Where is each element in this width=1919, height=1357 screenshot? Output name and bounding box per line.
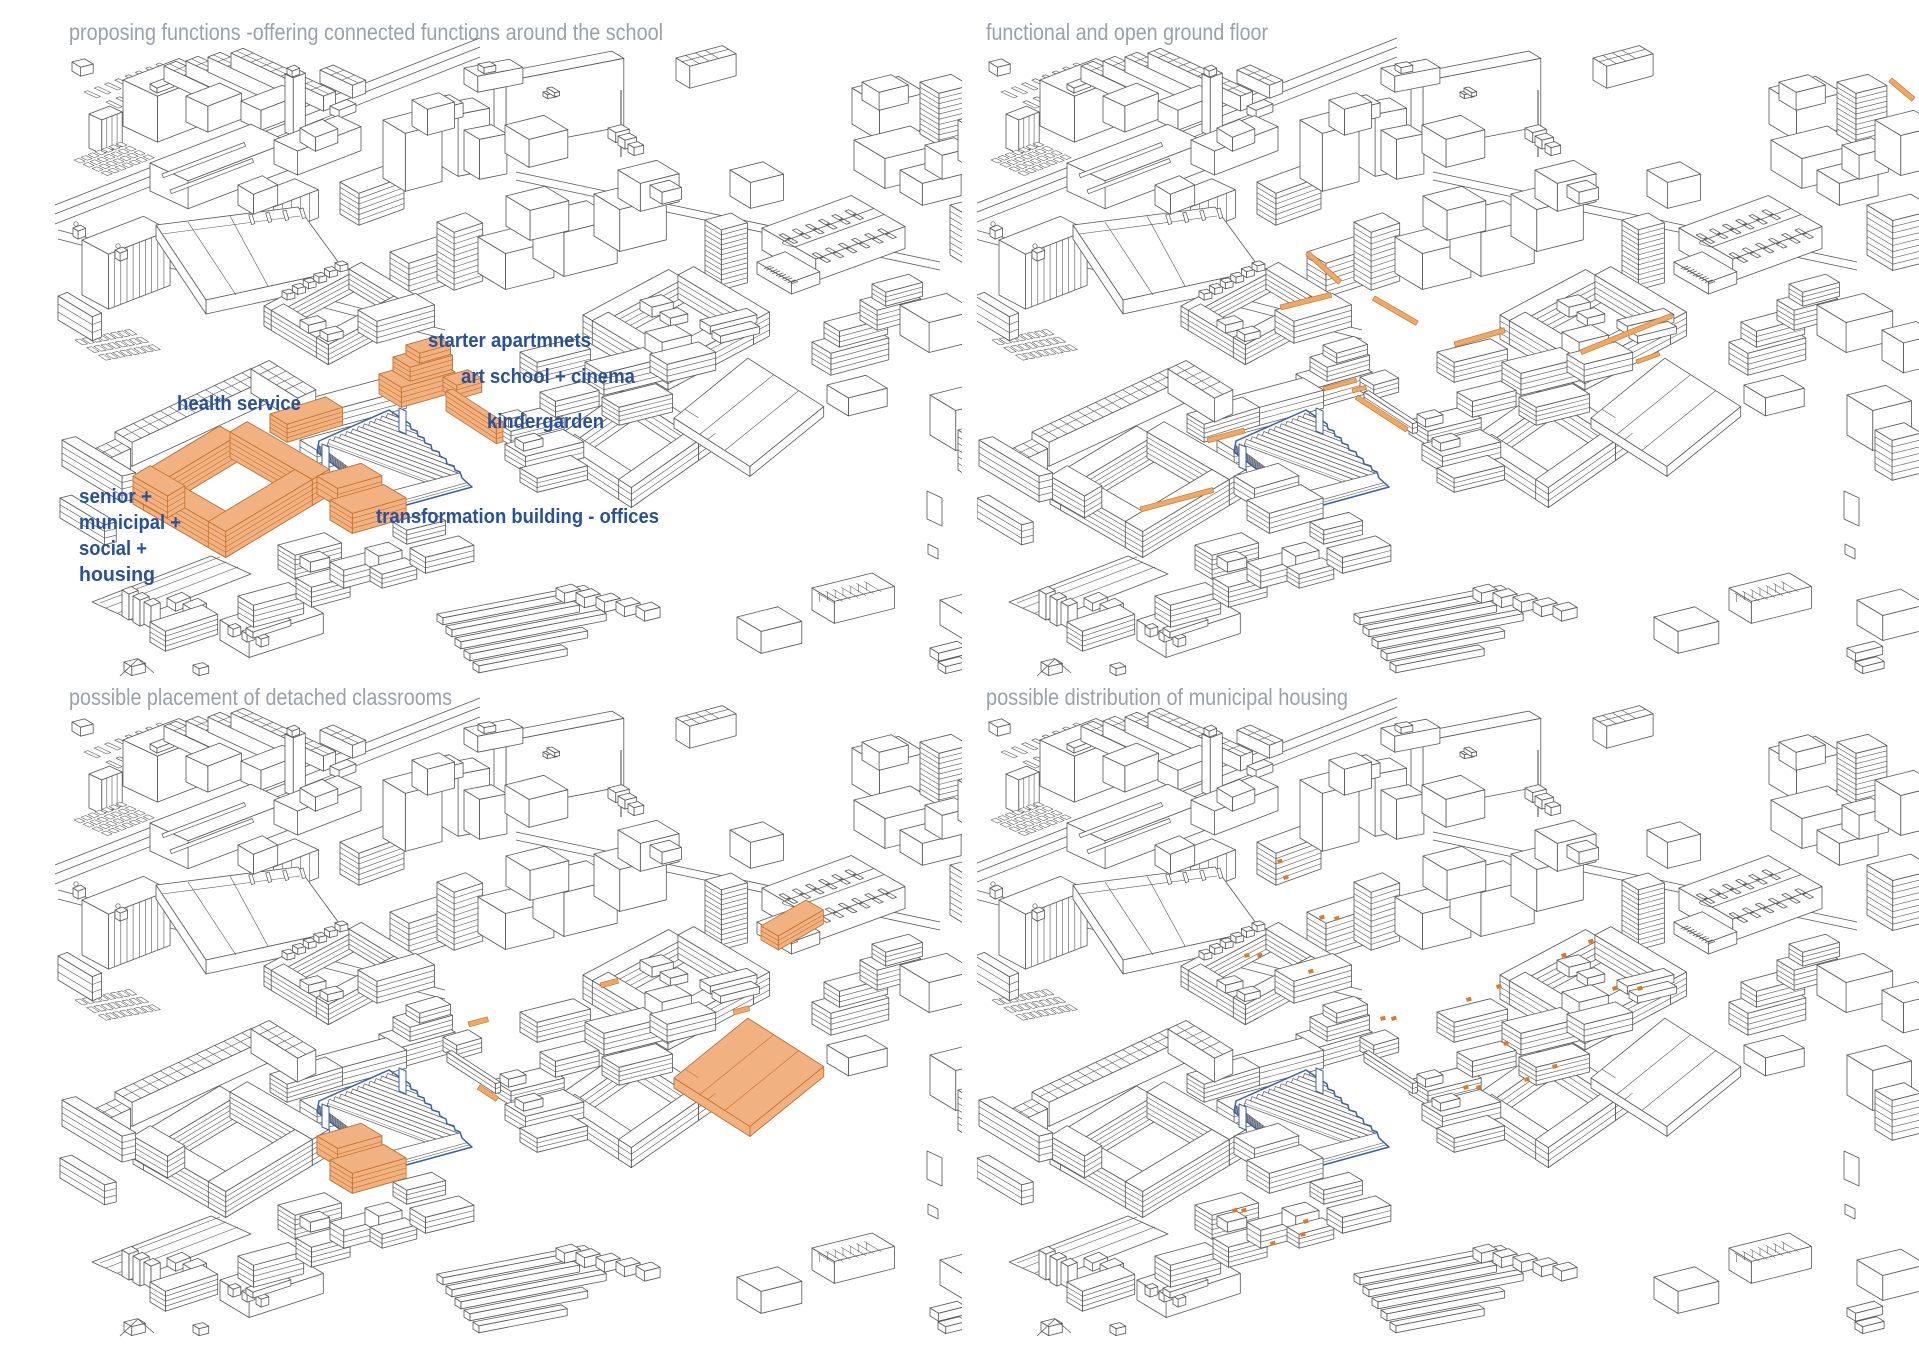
svg-text:kindergarden: kindergarden bbox=[487, 411, 604, 433]
svg-text:social +: social + bbox=[79, 538, 147, 560]
svg-text:functional and open ground flo: functional and open ground floor bbox=[986, 19, 1268, 45]
svg-text:possible distribution of munic: possible distribution of municipal housi… bbox=[986, 684, 1348, 710]
svg-text:starter apartmnets: starter apartmnets bbox=[428, 330, 591, 352]
svg-text:art school + cinema: art school + cinema bbox=[461, 366, 636, 388]
svg-text:possible placement of detached: possible placement of detached classroom… bbox=[69, 684, 452, 710]
svg-text:housing: housing bbox=[79, 564, 155, 586]
svg-text:proposing functions -offering: proposing functions -offering connected … bbox=[69, 19, 663, 45]
svg-text:health service: health service bbox=[177, 393, 301, 415]
svg-text:transformation building - offi: transformation building - offices bbox=[376, 506, 659, 528]
svg-text:senior +: senior + bbox=[79, 486, 152, 508]
svg-text:municipal +: municipal + bbox=[79, 512, 181, 534]
